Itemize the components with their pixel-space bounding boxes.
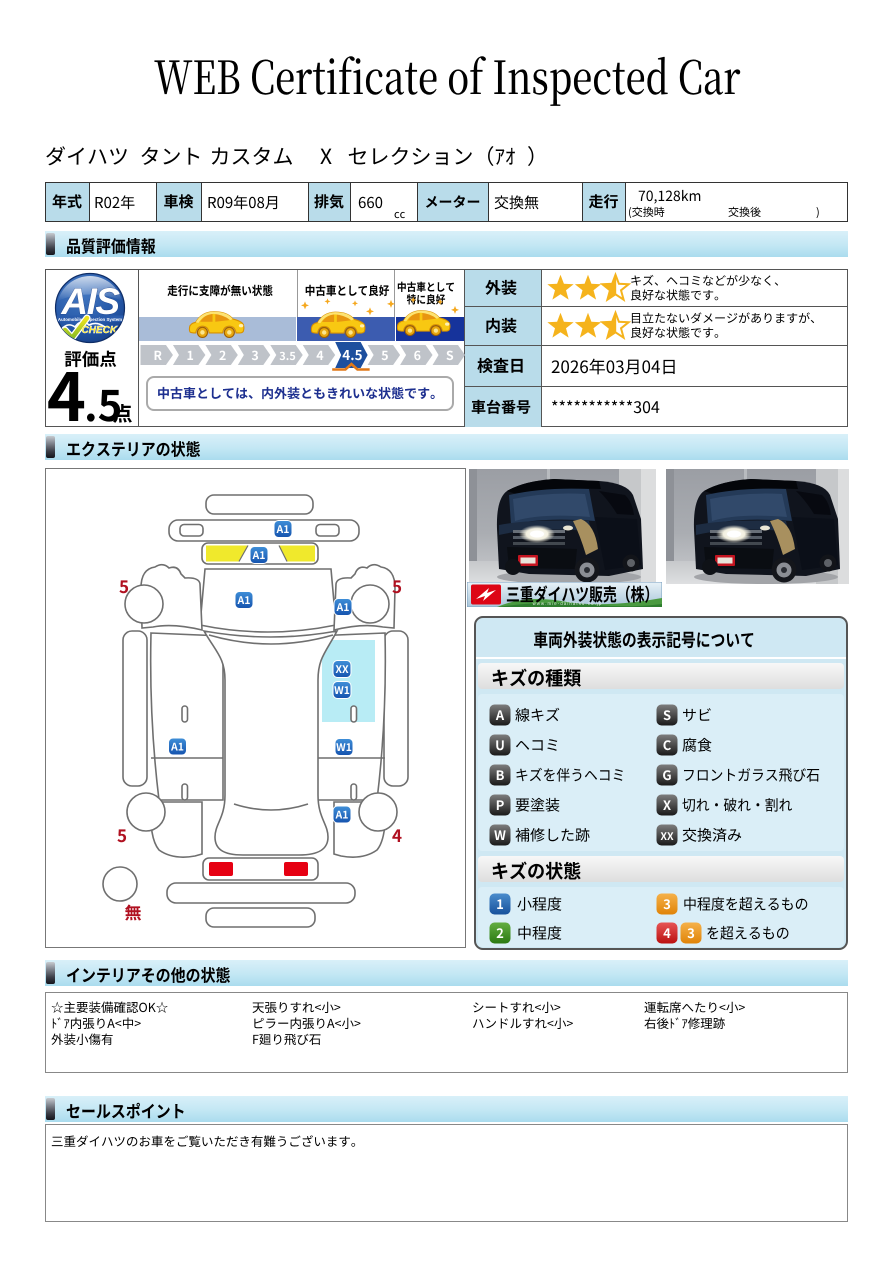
svg-text:w w w . m i e - d a i h a t s: w w w . m i e - d a i h a t s u . c o . …: [533, 601, 602, 606]
